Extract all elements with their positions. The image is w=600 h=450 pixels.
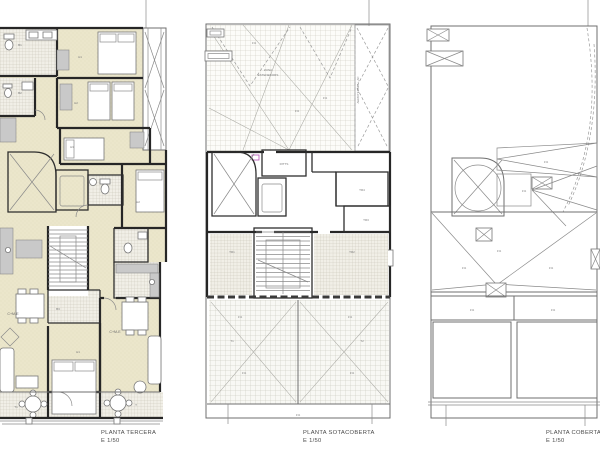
room-label-b2: B2: [18, 91, 22, 95]
caption-title: PLANTA SOTACOBERTA: [303, 430, 375, 438]
lower-terrace-floor: [209, 300, 389, 404]
slope-label: 1%: [295, 109, 300, 113]
slope-label: 1%: [242, 371, 247, 375]
room-label-cme-right: C+M-E: [109, 330, 121, 334]
slope-label: 1%: [462, 266, 467, 270]
hip-roof: [431, 212, 600, 297]
slope-label: 1%: [350, 371, 355, 375]
stair-well: [48, 226, 88, 296]
caption-scale: E 1/50: [101, 438, 156, 446]
room-label-cme-left: C+M-E: [7, 312, 19, 316]
room-label-b1: B1: [18, 43, 22, 47]
zona-estenedors-label-2: ESTENEDORS: [258, 73, 279, 77]
room-label-h2r: H2: [136, 200, 140, 204]
shaft-strip: [143, 28, 166, 150]
slope-label: 1%: [296, 413, 301, 417]
slope-label: 1%: [522, 189, 527, 193]
room-label-t1: T1: [14, 405, 18, 409]
room-label-ritts: RITTS: [280, 162, 289, 166]
slope-label: 1%: [348, 315, 353, 319]
room-label-h3: H3: [70, 145, 74, 149]
room-label-tr4: TR4: [359, 188, 365, 192]
slope-label: 1%: [551, 308, 556, 312]
staircase-icon: [254, 228, 312, 298]
closet: [0, 118, 16, 142]
room-label-t2: T2: [360, 339, 364, 343]
caption-scale: E 1/50: [546, 438, 600, 446]
room-label-b3: B3: [56, 307, 60, 311]
tr2-floor: [314, 234, 388, 295]
slope-label: 1%: [323, 96, 328, 100]
aerotermia-label: AEROTERMIA + AC: [356, 76, 360, 104]
slope-label: 1%: [544, 160, 549, 164]
chimney-vent-icon: [426, 29, 463, 66]
room-label-h1b: H1: [76, 350, 80, 354]
tr1-floor: [210, 234, 252, 295]
room-label-h1: H1: [78, 55, 82, 59]
caption-title: PLANTA TERCERA: [101, 430, 156, 438]
plan-sotacoberta: AEROTERMIA + AC ZONA ESTENEDORS 1% 1% 1%…: [205, 24, 393, 424]
caption-title: PLANTA COBERTA: [546, 430, 600, 438]
caption-scale: E 1/50: [303, 438, 375, 446]
upper-terrace-floor: [207, 25, 355, 151]
room-label-h2: H2: [74, 101, 78, 105]
room-label-tr2: TR2: [349, 250, 355, 254]
caption-planta-coberta: PLANTA COBERTA E 1/50: [546, 430, 600, 446]
elevator-car: [258, 178, 286, 216]
lower-roof-bands: [428, 296, 600, 426]
room-label-t1: T1: [230, 339, 234, 343]
floor-plan-sheet: B1 B2 H1 H2 H3 H2 B3 C+M-E C+M-E H1 T1 T: [0, 0, 600, 450]
aerotermia-strip: [355, 25, 389, 151]
elevator-overrun-icon: [452, 158, 504, 216]
rooftop-box: [497, 166, 597, 226]
slope-label: 1%: [497, 249, 502, 253]
room-label-t: T: [135, 403, 137, 407]
caption-planta-sotacoberta: PLANTA SOTACOBERTA E 1/50: [303, 430, 375, 446]
room-label-tr3: TR3: [363, 218, 369, 222]
plan-coberta: 1% 1% 1% 1% 1% 1% 1%: [426, 26, 600, 426]
projection-curve: [568, 44, 595, 206]
zona-estenedors-label-1: ZONA: [264, 68, 272, 72]
slope-label: 1%: [549, 266, 554, 270]
room-label-tr1: TR1: [229, 250, 235, 254]
slope-label: 1%: [238, 315, 243, 319]
caption-planta-tercera: PLANTA TERCERA E 1/50: [101, 430, 156, 446]
plan-tercera: B1 B2 H1 H2 H3 H2 B3 C+M-E C+M-E H1 T1 T: [0, 28, 166, 424]
elevator-shaft-icon: [212, 152, 256, 216]
slope-label: 1%: [252, 41, 257, 45]
slope-label: 1%: [470, 308, 475, 312]
